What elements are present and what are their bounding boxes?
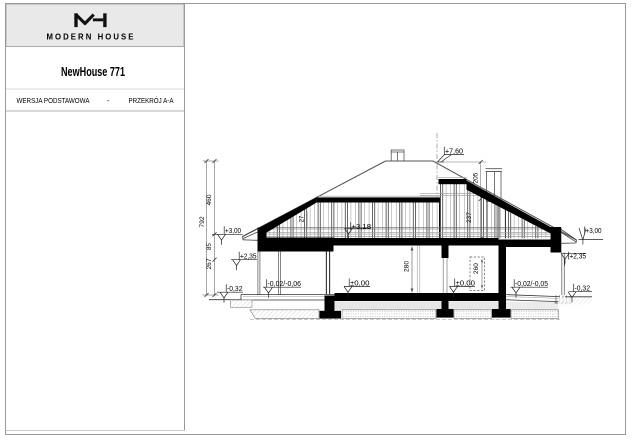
svg-text:WERSJA PODSTAWOWA: WERSJA PODSTAWOWA — [17, 96, 91, 105]
svg-text:460: 460 — [206, 194, 213, 205]
svg-text:-0,32: -0,32 — [227, 284, 243, 293]
svg-text:260: 260 — [473, 263, 480, 274]
svg-text:27: 27 — [300, 215, 306, 222]
svg-text:792: 792 — [199, 216, 206, 228]
svg-text:+2,35: +2,35 — [240, 252, 257, 261]
svg-text:PRZEKRÓJ A-A: PRZEKRÓJ A-A — [129, 96, 175, 105]
svg-text:+3,18: +3,18 — [352, 222, 372, 231]
svg-text:205: 205 — [472, 172, 479, 183]
svg-text:±0,00: ±0,00 — [456, 278, 476, 287]
svg-text:-0,32: -0,32 — [575, 284, 591, 293]
svg-text:±0,00: ±0,00 — [350, 278, 370, 287]
svg-text:+7,60: +7,60 — [445, 147, 463, 156]
svg-text:+3,00: +3,00 — [225, 226, 241, 235]
svg-text:85: 85 — [206, 243, 213, 250]
svg-text:-0,02/-0,05: -0,02/-0,05 — [515, 279, 548, 288]
svg-text:+2,35: +2,35 — [570, 252, 587, 261]
svg-text:NewHouse 771: NewHouse 771 — [61, 64, 125, 79]
svg-text:267: 267 — [206, 258, 213, 269]
svg-text:+3,00: +3,00 — [586, 226, 602, 235]
svg-text:-0,02/-0,06: -0,02/-0,06 — [268, 279, 302, 288]
svg-text:MODERN HOUSE: MODERN HOUSE — [47, 33, 136, 42]
svg-text:280: 280 — [404, 261, 411, 272]
